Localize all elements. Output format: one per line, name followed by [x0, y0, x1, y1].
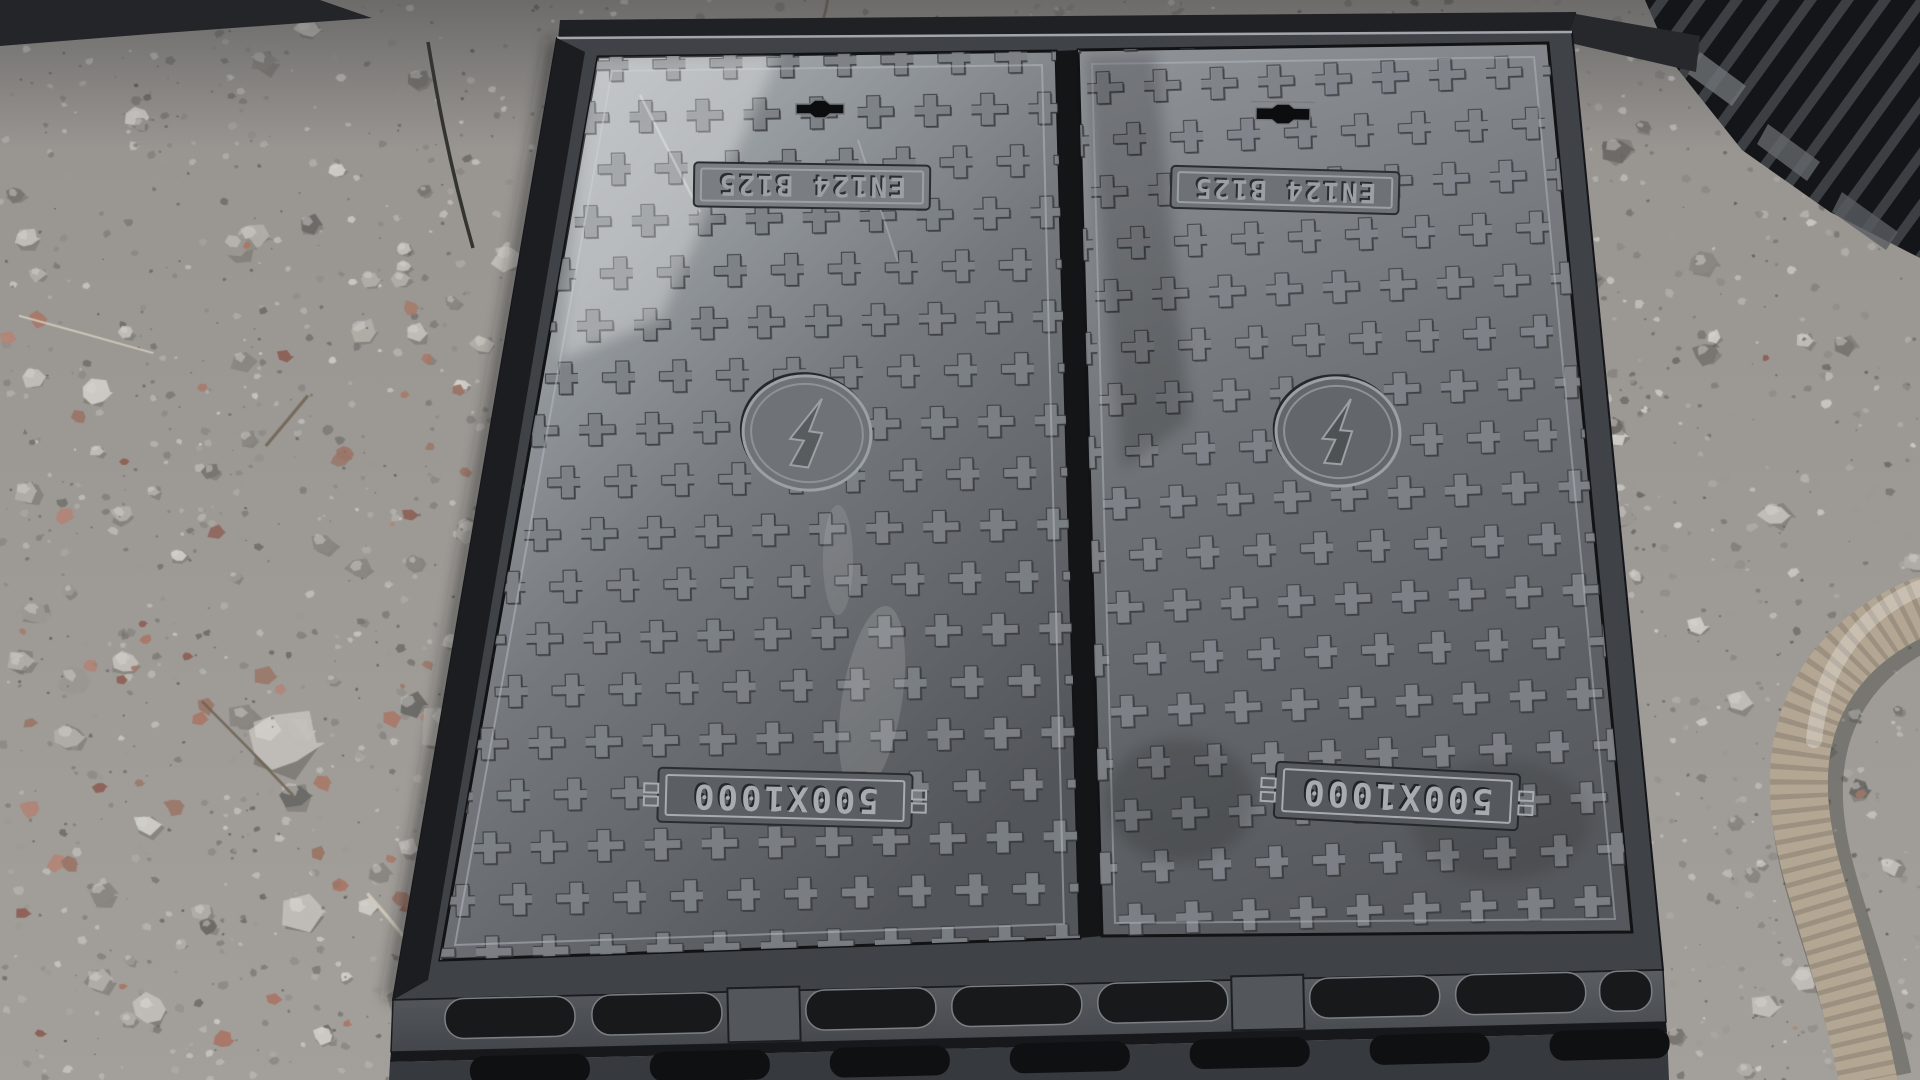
twig — [428, 42, 473, 248]
frame-slot — [805, 987, 936, 1030]
castings-layer: EN124 B125 EN124 B125 — [0, 0, 1920, 1080]
frame-slot — [650, 1049, 771, 1080]
frame-slot — [1599, 971, 1652, 1012]
frame-slot — [1009, 1041, 1130, 1074]
background-casting-top-left — [0, 0, 372, 46]
frame-slot — [445, 996, 576, 1039]
paint-smudge — [823, 505, 853, 615]
frame-slot — [1309, 976, 1440, 1019]
corrugated-hose — [1799, 588, 1920, 1080]
class-plate-right-text: EN124 B125 — [1193, 172, 1376, 208]
manhole-unit: EN124 B125 EN124 B125 — [389, 32, 1670, 1080]
frame-slot — [1455, 972, 1586, 1015]
frame-slot — [1097, 980, 1228, 1023]
frame-tab — [727, 987, 800, 1043]
dark-blotch — [1105, 738, 1255, 862]
size-plate-left: 500X1000 500X1000 — [643, 767, 926, 828]
frame-slot — [1189, 1037, 1310, 1070]
class-plate-left: EN124 B125 EN124 B125 — [694, 162, 931, 209]
frame-slot — [470, 1054, 591, 1080]
photo-scene: EN124 B125 EN124 B125 — [0, 0, 1920, 1080]
frame-slot — [1549, 1028, 1670, 1061]
cover-right: EN124 B125 EN124 B125 500X1000 — [1078, 43, 1632, 936]
frame-slot — [1369, 1032, 1490, 1065]
frame-slot — [951, 984, 1082, 1027]
class-plate-left-text: EN124 B125 — [717, 168, 906, 204]
frame-tab — [1231, 975, 1304, 1031]
size-plate-left-text: 500X1000 — [691, 776, 880, 821]
frame-slot — [591, 992, 722, 1035]
class-plate-right: EN124 B125 EN124 B125 — [1170, 166, 1399, 214]
frame-slot — [829, 1045, 950, 1078]
